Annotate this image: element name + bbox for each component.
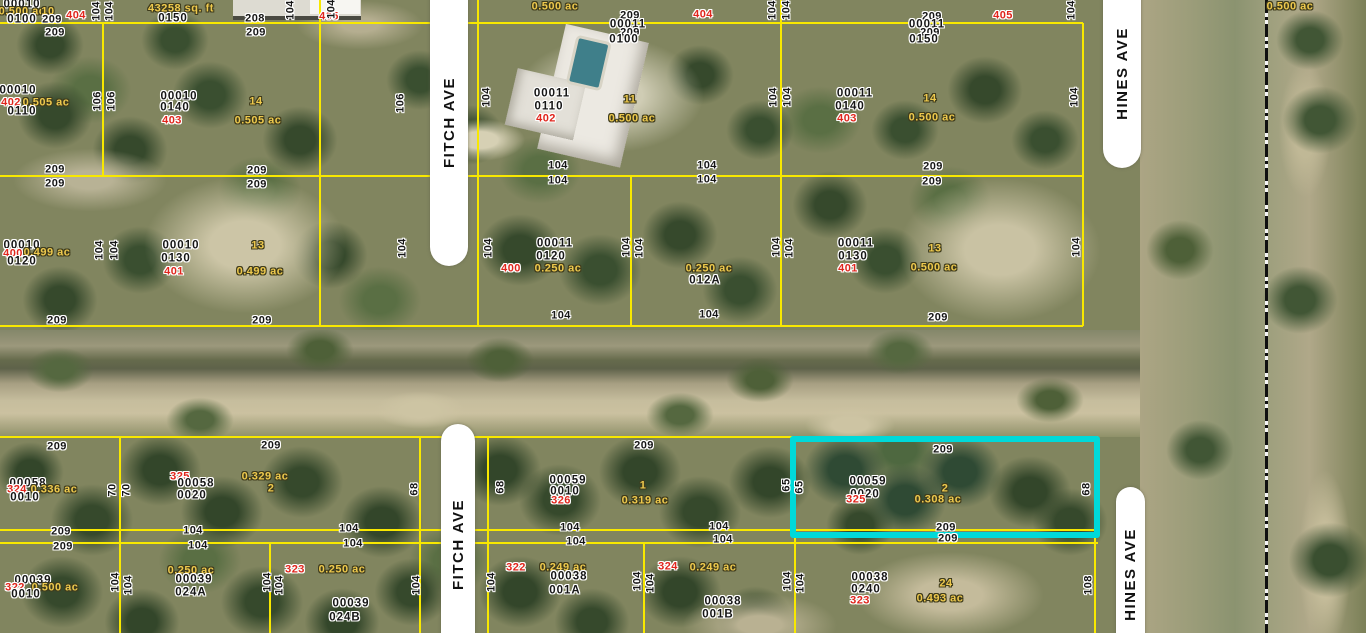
dimension-label: 209	[247, 166, 267, 177]
dimension-label: 104	[768, 0, 779, 20]
dimension-label: 104	[95, 240, 106, 260]
parcel-id-label: 024A	[175, 587, 207, 599]
parcel-id-label: 00038	[852, 572, 889, 584]
house-number-label: 402	[536, 114, 556, 125]
house-number-label: 400	[501, 264, 521, 275]
lot-area-label: 14	[923, 94, 936, 105]
dimension-label: 104	[646, 573, 657, 593]
house-number-label: 323	[850, 596, 870, 607]
lot-area-label: 14	[249, 97, 262, 108]
parcel-id-label: 0140	[160, 102, 190, 114]
lot-area-label: 0.499 ac	[237, 267, 284, 278]
house-number-label: 401	[164, 267, 184, 278]
dimension-label: 104	[769, 87, 780, 107]
lot-area-label: 0.249 ac	[690, 563, 737, 574]
lot-area-label: 0.250 ac	[686, 264, 733, 275]
dimension-label: 68	[1082, 482, 1093, 495]
dimension-label: 104	[92, 1, 103, 21]
dimension-label: 209	[261, 441, 281, 452]
house-number-label: 403	[837, 114, 857, 125]
dimension-label: 104	[482, 87, 493, 107]
parcel-id-label: 00039	[333, 598, 370, 610]
dimension-label: 208	[245, 14, 265, 25]
dimension-label: 108	[1084, 575, 1095, 595]
dimension-label: 70	[108, 483, 119, 496]
parcel-id-label: 00011	[534, 88, 570, 100]
dimension-label: 104	[1070, 87, 1081, 107]
lot-area-label: 11	[624, 95, 637, 106]
parcel-id-label: 00010	[0, 85, 36, 97]
lot-area-label: 2	[268, 484, 275, 495]
lot-area-label: 0.250 ac	[535, 264, 582, 275]
dimension-label: 209	[45, 165, 65, 176]
dimension-label: 209	[634, 441, 654, 452]
house-number-label: 401	[838, 264, 858, 275]
parcel-id-label: 001B	[702, 609, 734, 621]
parcel-id-label: 0140	[835, 101, 865, 113]
dimension-label: 104	[484, 238, 495, 258]
dimension-label: 209	[246, 28, 266, 39]
parcel-id-label: 00038	[705, 596, 742, 608]
dimension-label: 104	[548, 161, 568, 172]
dimension-label: 104	[275, 575, 286, 595]
dimension-label: 209	[45, 28, 65, 39]
dimension-label: 104	[124, 575, 135, 595]
dimension-label: 209	[923, 162, 943, 173]
dimension-label: 104	[111, 572, 122, 592]
dimension-label: 65	[782, 478, 793, 491]
parcel-id-label: 0130	[838, 251, 868, 263]
lot-area-label: 13	[928, 244, 941, 255]
parcel-id-label: 00011	[838, 238, 874, 250]
parcel-id-label: 0110	[535, 101, 564, 113]
dimension-label: 104	[343, 539, 363, 550]
dimension-label: 104	[110, 240, 121, 260]
lot-area-label: 0.250 ac	[319, 565, 366, 576]
house-number-label: 323	[285, 565, 305, 576]
dimension-label: 104	[796, 573, 807, 593]
lot-area-label: 0.500 ac	[532, 2, 579, 13]
dimension-label: 65	[795, 480, 806, 493]
parcel-id-label: 0010	[10, 492, 40, 504]
lot-area-label: 0.500 ac	[1267, 2, 1314, 13]
dimension-label: 104	[772, 237, 783, 257]
dimension-label: 104	[697, 175, 717, 186]
house-number-label: 322	[506, 563, 526, 574]
dimension-label: 104	[339, 524, 359, 535]
dimension-label: 68	[496, 480, 507, 493]
lot-area-label: 0.319 ac	[622, 496, 669, 507]
lot-area-label: 24	[939, 579, 952, 590]
dimension-label: 68	[410, 482, 421, 495]
parcel-id-label: 00011	[537, 238, 573, 250]
lot-area-label: 0.500 ac	[609, 114, 656, 125]
parcel-id-label: 0110	[8, 106, 37, 118]
lot-area-label: 0.308 ac	[915, 495, 962, 506]
dimension-label: 104	[105, 1, 116, 21]
dimension-label: 104	[782, 0, 793, 20]
dimension-label: 104	[398, 238, 409, 258]
dimension-label: 104	[188, 541, 208, 552]
lot-area-label: 1	[640, 481, 647, 492]
parcel-id-label: 0150	[158, 13, 188, 25]
house-number-label: 324	[658, 562, 678, 573]
dimension-label: 209	[252, 316, 272, 327]
house-number-label: 325	[846, 495, 866, 506]
parcel-id-label: 00010	[163, 240, 200, 252]
dimension-label: 104	[635, 238, 646, 258]
parcel-id-label: 00039	[176, 574, 213, 586]
dimension-label: 106	[93, 91, 104, 111]
aerial-map[interactable]: FITCH AVE FITCH AVE HINES AVE HINES AVE …	[0, 0, 1366, 633]
lot-area-label: 0.329 ac	[242, 472, 289, 483]
house-number-label: 403	[162, 116, 182, 127]
dimension-label: 209	[247, 180, 267, 191]
dimension-label: 106	[107, 91, 118, 111]
dimension-label: 209	[938, 534, 958, 545]
dimension-label: 70	[122, 483, 133, 496]
dimension-label: 104	[487, 572, 498, 592]
lot-area-label: 0.500 ac	[909, 113, 956, 124]
dimension-label: 104	[713, 535, 733, 546]
dimension-label: 209	[922, 177, 942, 188]
dimension-label: 104	[327, 0, 338, 19]
parcel-id-label: 001A	[549, 585, 581, 597]
dimension-label: 104	[633, 571, 644, 591]
dimension-label: 104	[412, 575, 423, 595]
house-number-label: 404	[693, 10, 713, 21]
dimension-label: 104	[1072, 237, 1083, 257]
dimension-label: 209	[45, 179, 65, 190]
dimension-label: 104	[697, 161, 717, 172]
dimension-label: 104	[286, 0, 297, 20]
parcel-id-label: 0010	[11, 589, 41, 601]
parcel-id-label: 0100	[609, 34, 639, 46]
parcel-id-label: 00058	[178, 478, 215, 490]
parcel-id-label: 0130	[161, 253, 191, 265]
label-layer: 000100.500 ac10010020940410410443258 sq.…	[0, 0, 1366, 633]
lot-area-label: 0.500 ac	[911, 263, 958, 274]
dimension-label: 104	[560, 523, 580, 534]
house-number-label: 404	[66, 11, 86, 22]
dimension-label: 209	[53, 542, 73, 553]
parcel-id-label: 00038	[551, 571, 588, 583]
dimension-label: 104	[263, 572, 274, 592]
parcel-id-label: 0150	[909, 34, 939, 46]
dimension-label: 104	[566, 537, 586, 548]
parcel-id-label: 00011	[837, 88, 873, 100]
house-number-label: 326	[551, 496, 571, 507]
house-number-label: 405	[993, 11, 1013, 22]
parcel-id-label: 024B	[329, 612, 361, 624]
dimension-label: 209	[928, 313, 948, 324]
parcel-id-label: 0100	[7, 14, 37, 26]
lot-area-label: 13	[251, 241, 264, 252]
parcel-id-label: 00059	[850, 476, 887, 488]
parcel-id-label: 0120	[7, 256, 37, 268]
dimension-label: 104	[699, 310, 719, 321]
dimension-label: 104	[709, 522, 729, 533]
parcel-id-label: 012A	[689, 275, 721, 287]
dimension-label: 209	[47, 316, 67, 327]
dimension-label: 209	[42, 15, 62, 26]
dimension-label: 104	[1067, 0, 1078, 20]
dimension-label: 104	[548, 176, 568, 187]
dimension-label: 104	[785, 238, 796, 258]
lot-area-label: 0.505 ac	[235, 116, 282, 127]
dimension-label: 104	[183, 526, 203, 537]
dimension-label: 104	[783, 571, 794, 591]
lot-area-label: 0.493 ac	[917, 594, 964, 605]
dimension-label: 104	[622, 237, 633, 257]
dimension-label: 209	[51, 527, 71, 538]
parcel-id-label: 0020	[177, 490, 207, 502]
dimension-label: 209	[933, 445, 953, 456]
dimension-label: 104	[783, 87, 794, 107]
parcel-id-label: 0120	[536, 251, 566, 263]
dimension-label: 209	[47, 442, 67, 453]
dimension-label: 106	[396, 93, 407, 113]
dimension-label: 104	[551, 311, 571, 322]
